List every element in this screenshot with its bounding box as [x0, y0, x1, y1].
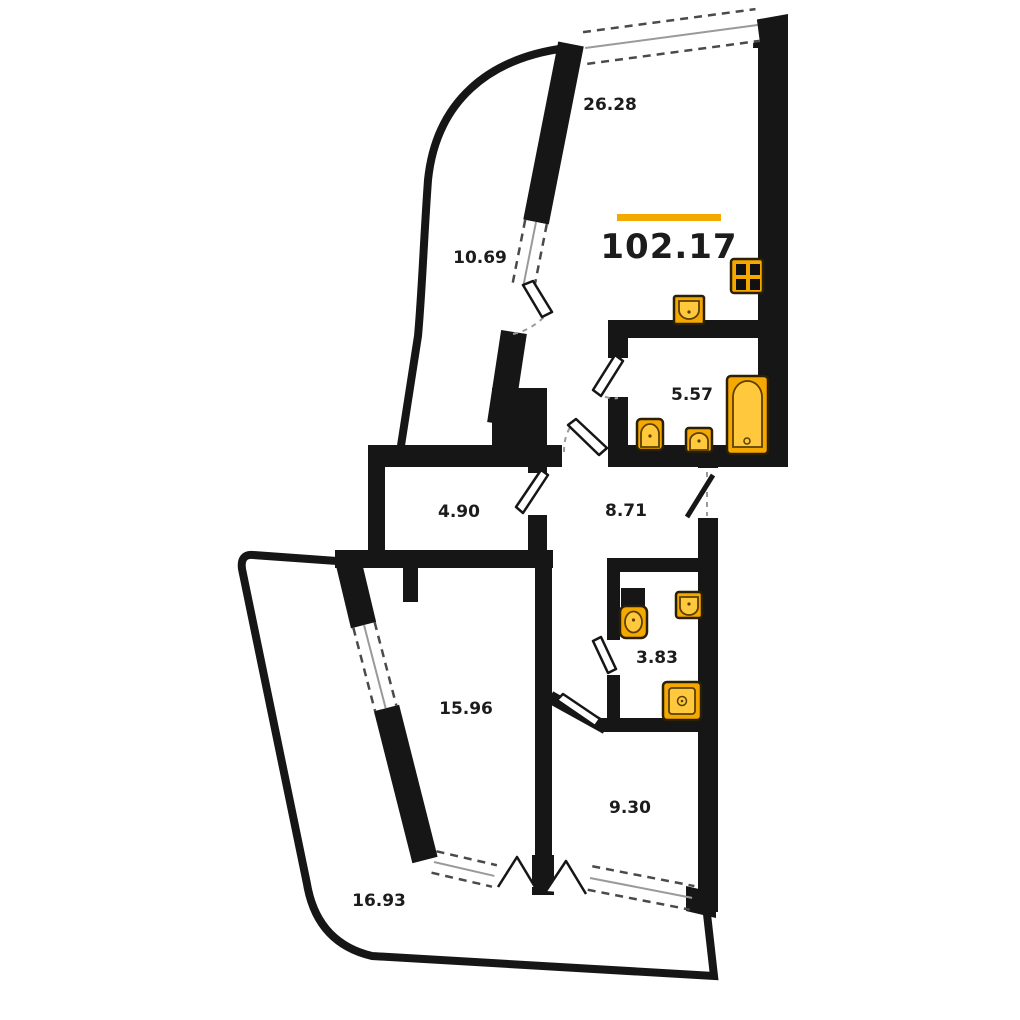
wall-nook-stub	[403, 568, 418, 602]
total-accent-bar	[617, 214, 721, 221]
bathroom-sink-icon	[686, 428, 712, 452]
wall-wc-left-lower	[607, 675, 620, 722]
wall-wc-top	[607, 558, 707, 572]
walls	[335, 14, 788, 918]
floor-plan-page: 102.17 26.28 10.69 5.57 4.90 8.71 3.83 1…	[0, 0, 1020, 1020]
door-storage-leaf	[516, 470, 548, 513]
area-label-living-kitchen: 26.28	[583, 95, 637, 115]
wall-dividing	[535, 550, 552, 862]
door-wc-leaf	[593, 637, 616, 673]
wall-bathroom-left-lower	[608, 397, 628, 450]
window-top	[583, 6, 760, 65]
wall-bedroom-top	[335, 550, 553, 568]
area-label-wc: 3.83	[636, 648, 678, 668]
wall-slant-lower	[500, 332, 514, 424]
area-label-bedroom: 15.96	[439, 699, 493, 719]
wall-storage-left	[368, 452, 385, 560]
door-entry-leaf	[687, 475, 713, 517]
door-kitchen-hall-swing	[564, 426, 571, 452]
area-label-room: 9.30	[609, 798, 651, 818]
wall-bedroom-slant-lower	[386, 706, 425, 860]
bathtub-icon	[727, 376, 768, 454]
area-label-bathroom: 5.57	[671, 385, 713, 405]
door-balcony-leaf	[523, 281, 552, 317]
door-bathroom-leaf	[593, 355, 623, 396]
french-door-bedroom	[498, 857, 535, 887]
shower-icon	[663, 682, 701, 720]
wall-bathroom-left-upper	[608, 320, 628, 358]
wall-slant-upper	[536, 44, 571, 222]
window-bedroom-balcony	[432, 851, 497, 886]
floor-plan-svg: 102.17 26.28 10.69 5.57 4.90 8.71 3.83 1…	[0, 0, 1020, 1020]
wall-storage-hall	[528, 515, 547, 555]
area-label-balcony-top: 10.69	[453, 248, 507, 268]
wc-sink-icon	[676, 592, 702, 618]
area-label-storage: 4.90	[438, 502, 480, 522]
kitchen-sink-icon	[674, 296, 704, 324]
wc-toilet-icon	[620, 606, 647, 638]
window-room-bottom	[588, 866, 695, 909]
area-label-balcony-bottom: 16.93	[352, 891, 406, 911]
doors	[498, 281, 713, 894]
total-area-label: 102.17	[600, 227, 737, 267]
door-kitchen-hall-leaf	[568, 419, 607, 455]
wall-wc-left-upper	[607, 558, 620, 640]
bathroom-toilet-icon	[637, 419, 663, 450]
wall-bedroom-slant-upper	[348, 560, 364, 627]
window-bedroom	[350, 621, 399, 711]
window-balcony-top-wall	[509, 219, 549, 289]
area-label-hallway: 8.71	[605, 501, 647, 521]
